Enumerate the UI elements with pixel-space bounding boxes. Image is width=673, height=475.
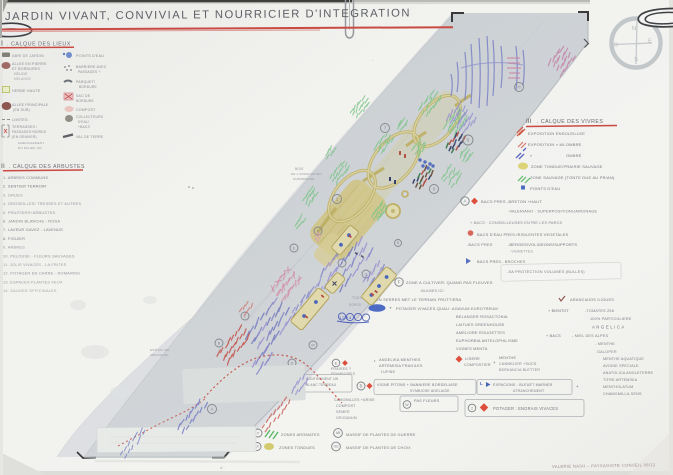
svg-text:ALLEE PRINCIPALE: ALLEE PRINCIPALE	[12, 103, 49, 107]
svg-text:PASSAGES +: PASSAGES +	[78, 70, 101, 74]
svg-text:LISERE: LISERE	[465, 356, 480, 361]
svg-text:100% PARTICULIERE: 100% PARTICULIERE	[590, 317, 632, 321]
svg-text:BARRIERE AVEC: BARRIERE AVEC	[76, 65, 107, 69]
svg-text:BACS PRES -BRETON +HAUT: BACS PRES -BRETON +HAUT	[481, 199, 542, 204]
svg-text:6. JARDIN BLANCHE - ROSA: 6. JARDIN BLANCHE - ROSA	[3, 219, 60, 224]
svg-text:HERBE HAUTE: HERBE HAUTE	[12, 89, 41, 93]
svg-text:ABRASATEL: ABRASATEL	[150, 353, 169, 357]
svg-text:+ BACS: + BACS	[546, 334, 561, 338]
svg-text:2. SENTIER TERROIR: 2. SENTIER TERROIR	[3, 184, 46, 189]
svg-text:MENTHE: MENTHE	[499, 356, 516, 360]
svg-text:AMENAGEMENT: AMENAGEMENT	[18, 141, 44, 145]
svg-text:A N G E L I C A: A N G E L I C A	[592, 325, 624, 330]
svg-text:ORIGANUM: ORIGANUM	[336, 416, 357, 420]
svg-text:A: A	[463, 199, 466, 204]
svg-text:CAMOMILLES +ARISE: CAMOMILLES +ARISE	[334, 398, 375, 402]
svg-text:1. ARBRES COMMUNS: 1. ARBRES COMMUNS	[3, 175, 48, 180]
svg-text:ARTEMISIA FRAGILES: ARTEMISIA FRAGILES	[379, 364, 423, 368]
svg-text:8. FIGUIER: 8. FIGUIER	[3, 236, 25, 241]
svg-text:3. GRUES: 3. GRUES	[3, 192, 23, 197]
svg-text:OU: OU	[334, 445, 339, 449]
svg-text:BERKANCIA BLETTER: BERKANCIA BLETTER	[499, 368, 540, 372]
svg-text:COMPOST: COMPOST	[336, 404, 356, 408]
svg-text:FRAISES ?: FRAISES ?	[331, 367, 351, 371]
svg-text:- MENTHE: - MENTHE	[595, 342, 615, 346]
svg-text:BACS PRES: BACS PRES	[477, 259, 501, 264]
svg-text:S: S	[634, 57, 638, 63]
svg-text:ET BORDURES: ET BORDURES	[12, 67, 40, 71]
svg-text:DE L'ASSOCIATION: DE L'ASSOCIATION	[291, 172, 322, 176]
svg-text:SUBURBAINE: SUBURBAINE	[293, 177, 315, 181]
svg-text:E: E	[335, 360, 338, 365]
svg-text:HELIDE: HELIDE	[14, 72, 28, 76]
svg-text:ZONE A CULTIVER: QUAND PAS FLE: ZONE A CULTIVER: QUAND PAS FLEUVES	[406, 280, 493, 285]
svg-text:-VALERIANO - SUPERPOSITION/JAR: -VALERIANO - SUPERPOSITION/JARDINAGE	[508, 209, 597, 214]
svg-text:VIGNES MENTA: VIGNES MENTA	[456, 346, 488, 351]
svg-text:Y: Y	[257, 431, 260, 435]
svg-text:POTAGER VIVACES-QUALI: AGAVUM: POTAGER VIVACES-QUALI: AGAVUM EUROTREUM	[396, 306, 498, 311]
svg-text:CANNELIER +SUCS: CANNELIER +SUCS	[499, 362, 537, 366]
svg-text:9. ARBRES: 9. ARBRES	[3, 245, 25, 250]
svg-text:TITRE ARTEMISIA: TITRE ARTEMISIA	[603, 378, 638, 382]
svg-text:MASSIF DE PLANTES DE GUERRE: MASSIF DE PLANTES DE GUERRE	[346, 432, 416, 437]
svg-text:LAITUES GREENHOUSE: LAITUES GREENHOUSE	[456, 322, 505, 327]
svg-text:H: H	[517, 85, 520, 90]
svg-text:ANGELIKA MENTHES: ANGELIKA MENTHES	[379, 358, 421, 362]
svg-text:PASSAGES+BORDS: PASSAGES+BORDS	[12, 130, 47, 134]
svg-text:10. PELOUSE - FLEURS SAUVAGES: 10. PELOUSE - FLEURS SAUVAGES	[3, 253, 75, 258]
svg-text:-SA PROTECTION VOLUMES (BULLES: -SA PROTECTION VOLUMES (BULLES)	[507, 269, 585, 274]
svg-text:COMPOST: COMPOST	[76, 108, 96, 112]
svg-text:EXPOSITION « MI-OMBRE: EXPOSITION « MI-OMBRE	[528, 142, 582, 147]
svg-text:ARANCIAIOS /LIGUES: ARANCIAIOS /LIGUES	[570, 297, 614, 302]
svg-text:MENTHOLATUM: MENTHOLATUM	[603, 385, 633, 389]
svg-text:-BACS PRES: -BACS PRES	[467, 242, 493, 247]
svg-text:ZONES TONDUES: ZONES TONDUES	[279, 445, 315, 450]
svg-text:4··: 4··	[220, 466, 225, 470]
svg-text:MENTHE AQUATIQUE: MENTHE AQUATIQUE	[603, 357, 644, 361]
svg-text:14. SAUGES OFFICINALES: 14. SAUGES OFFICINALES	[3, 288, 57, 293]
svg-text:CONTIENNENT UN: CONTIENNENT UN	[306, 377, 339, 381]
svg-text:(EN GRAVIER): (EN GRAVIER)	[12, 135, 37, 139]
svg-text:12. POTAGER EN CARRE - ROMARIN: 12. POTAGER EN CARRE - ROMARINS	[3, 271, 80, 276]
svg-text:VAL DE TERRE: VAL DE TERRE	[76, 135, 104, 139]
svg-text:BOIS: BOIS	[295, 167, 303, 171]
svg-text:5. FRUITIERS+ARBUSTES: 5. FRUITIERS+ARBUSTES	[3, 210, 56, 215]
svg-text:L: L	[480, 381, 483, 386]
svg-text:AB: AB	[336, 431, 340, 435]
svg-text:+ BIENTOT: + BIENTOT	[548, 309, 569, 313]
svg-text:PARQUET/: PARQUET/	[76, 80, 95, 84]
svg-text:B: B	[359, 384, 362, 389]
svg-text:ALLEE EN PIERRE: ALLEE EN PIERRE	[12, 62, 47, 66]
svg-text:O: O	[614, 43, 619, 49]
svg-text:POINTS D'EAU: POINTS D'EAU	[76, 54, 104, 58]
svg-text:I: I	[1, 41, 3, 48]
svg-text:M: M	[311, 343, 314, 347]
svg-text:+ BACS · CONSEILLEUSES ENTRE: + BACS · CONSEILLEUSES ENTRE LES PARCS	[470, 221, 563, 225]
svg-text:1 2 3 4: 1 2 3 4	[339, 315, 352, 320]
svg-text:B: B	[218, 341, 221, 345]
svg-text:0: 0	[467, 138, 470, 144]
svg-text:·: ·	[372, 58, 374, 64]
svg-text:COLLECTEURS: COLLECTEURS	[76, 115, 104, 119]
svg-text:ZONES AROMATES: ZONES AROMATES	[281, 432, 320, 437]
svg-text:- BROCHES: - BROCHES	[502, 259, 526, 264]
svg-text:E: E	[293, 246, 296, 250]
svg-text:VIGNE PITONS + BANNIERE BORDEL: VIGNE PITONS + BANNIERE BORDELAISE	[377, 383, 458, 387]
svg-text:III: III	[526, 118, 532, 125]
svg-text:POINTS D'EAU: POINTS D'EAU	[530, 186, 560, 191]
svg-text:F: F	[398, 280, 401, 285]
svg-text:2: 2	[471, 406, 473, 410]
svg-text:SEMER: SEMER	[336, 410, 350, 414]
svg-text:MELANGE: MELANGE	[14, 77, 31, 81]
svg-text:E: E	[648, 39, 652, 45]
svg-text:D'EAU: D'EAU	[78, 120, 89, 124]
svg-text:SAC DE: SAC DE	[76, 94, 91, 98]
svg-text:4. GROSEILLES/ TRESSES ET AUTR: 4. GROSEILLES/ TRESSES ET AUTRES	[3, 201, 81, 206]
svg-text:BLANC TERREAU: BLANC TERREAU	[306, 383, 337, 387]
svg-text:PAS FLEURS: PAS FLEURS	[414, 399, 440, 403]
svg-text:+BACS: +BACS	[78, 125, 91, 129]
svg-text:ABRI DE JARDIN: ABRI DE JARDIN	[12, 54, 44, 58]
svg-text:7. LAVEUR GAVEZ - LAVENUS: 7. LAVEUR GAVEZ - LAVENUS	[3, 227, 63, 232]
svg-text:+: +	[389, 306, 392, 311]
svg-text:BORDURE: BORDURE	[79, 85, 97, 89]
svg-text:EXPACIONS - BLEUET MARNER: EXPACIONS - BLEUET MARNER	[493, 383, 553, 387]
svg-text:D: D	[291, 361, 294, 365]
svg-text:AMELIORE ROUGETTES: AMELIORE ROUGETTES	[456, 330, 505, 335]
svg-text:LUPINE: LUPINE	[381, 370, 396, 374]
svg-text:N: N	[632, 26, 636, 32]
svg-text:CHAMOMILLA-SENS: CHAMOMILLA-SENS	[603, 392, 642, 396]
svg-text:+: +	[576, 384, 579, 389]
svg-text:-BERGES/VOLIGEONS/SUPPORTS: -BERGES/VOLIGEONS/SUPPORTS	[508, 242, 577, 247]
svg-text:. CALQUE DES ARBUSTES: . CALQUE DES ARBUSTES	[9, 164, 85, 170]
svg-text:ATRANCHEMENT: ATRANCHEMENT	[513, 389, 545, 393]
svg-text:-TOMATES 256: -TOMATES 256	[585, 309, 614, 313]
svg-text:POTAGER : ENGRAIS VIVACES: POTAGER : ENGRAIS VIVACES	[493, 406, 558, 411]
svg-text:- MIEL DES ALPES: - MIEL DES ALPES	[572, 334, 608, 338]
svg-text:BELANGER ROSACTONIA: BELANGER ROSACTONIA	[456, 314, 508, 319]
svg-text:ROPES: ROPES	[349, 303, 361, 307]
svg-text:BACS D'EAU PRES-IRIS/LENTES VE: BACS D'EAU PRES-IRIS/LENTES VEGETALES	[477, 232, 569, 237]
svg-text:SYMBIOSE ADELAIDE: SYMBIOSE ADELAIDE	[410, 389, 450, 393]
svg-text:W: W	[405, 403, 409, 407]
svg-text:BORDURE: BORDURE	[76, 99, 94, 103]
svg-text:EN SERRES MET LE TERRAIN FRU: EN SERRES MET LE TERRAIN FRUTTIERA	[376, 297, 462, 302]
svg-text:TERRASSES /: TERRASSES /	[12, 125, 37, 129]
svg-text:II: II	[1, 163, 5, 170]
svg-text:EUPHORBIA ANTELOPHILISME: EUPHORBIA ANTELOPHILISME	[456, 338, 518, 343]
svg-text:GALOPER: GALOPER	[597, 350, 617, 354]
svg-text:ZONE TONDUE/PRAIRIE SAUVAGE: ZONE TONDUE/PRAIRIE SAUVAGE	[531, 164, 603, 169]
svg-text:-BULBES ICI: -BULBES ICI	[420, 289, 444, 293]
svg-text:A: A	[211, 407, 214, 412]
svg-text:-VIGNETTES: -VIGNETTES	[510, 250, 533, 254]
svg-text:(EN DUR): (EN DUR)	[13, 108, 30, 112]
svg-text:13. ESPACES PLANTES FEUX: 13. ESPACES PLANTES FEUX	[3, 279, 63, 284]
svg-text:ZONE SAUVAGE (TONTE DUE AU PR/: ZONE SAUVAGE (TONTE DUE AU PR/AN)	[530, 175, 615, 180]
svg-text:+: +	[493, 360, 496, 365]
svg-text:. CALQUE DES VIVRES: . CALQUE DES VIVRES	[537, 119, 603, 125]
svg-text:EN PALIER (M): EN PALIER (M)	[18, 146, 42, 150]
svg-text:ANATOLICA ANGLETERRE: ANATOLICA ANGLETERRE	[603, 371, 654, 375]
svg-text:OMBRE: OMBRE	[566, 153, 582, 158]
svg-text:COMPOSTIER: COMPOSTIER	[464, 363, 491, 367]
svg-text:AVOINE SPECIALE: AVOINE SPECIALE	[603, 364, 639, 368]
svg-text:EXPOSITION ENSOLEILLEE: EXPOSITION ENSOLEILLEE	[528, 131, 585, 136]
svg-text:11. JOLIS VIVACES - LA FRITES: 11. JOLIS VIVACES - LA FRITES	[3, 262, 67, 267]
svg-text:ESTIVAL MA.: ESTIVAL MA.	[150, 348, 170, 352]
svg-text:LIMITES: LIMITES	[12, 118, 28, 122]
svg-text:MASSIF DE PLANTES DE CHOIX: MASSIF DE PLANTES DE CHOIX	[346, 445, 411, 450]
